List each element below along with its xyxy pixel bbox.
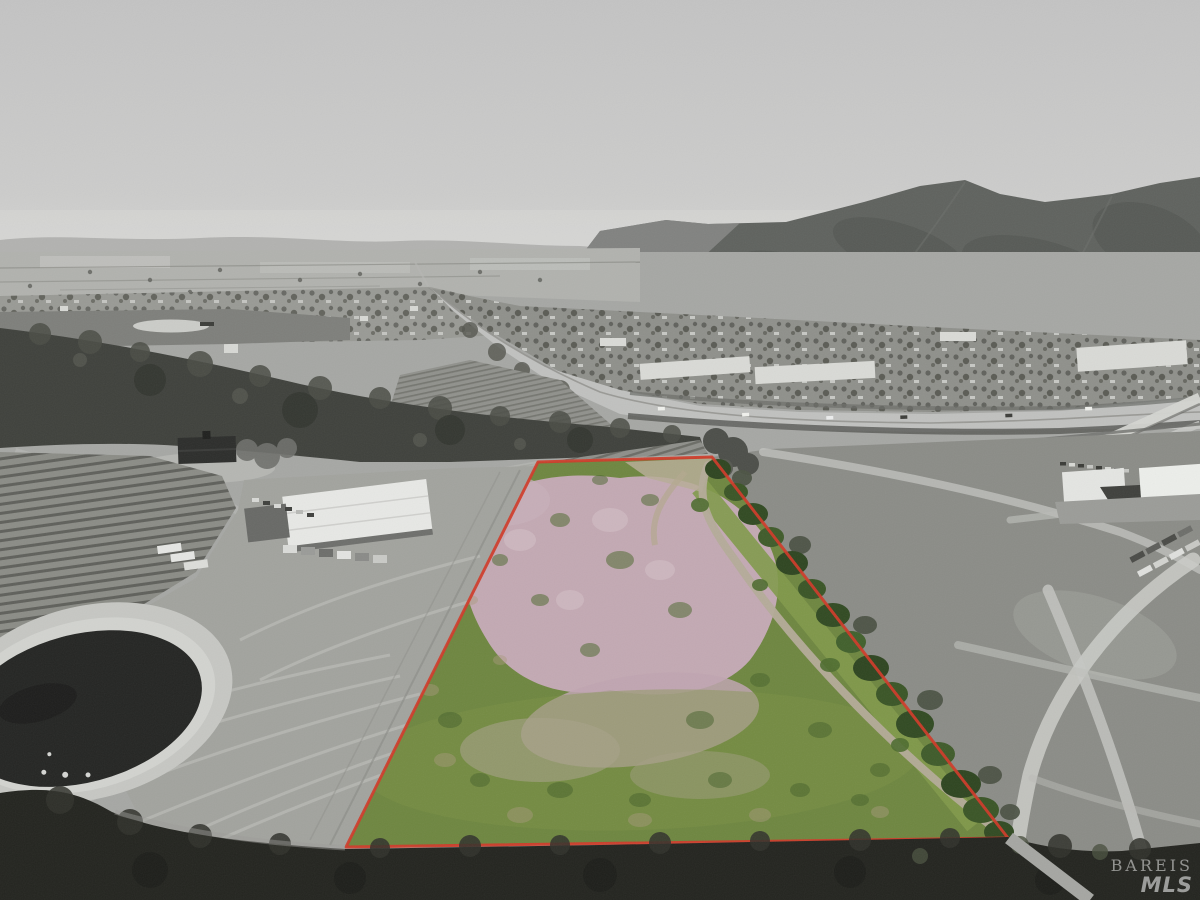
grain-overlay <box>0 0 1200 900</box>
aerial-photo-canvas: BAREIS MLS <box>0 0 1200 900</box>
aerial-photo: BAREIS MLS <box>0 0 1200 900</box>
